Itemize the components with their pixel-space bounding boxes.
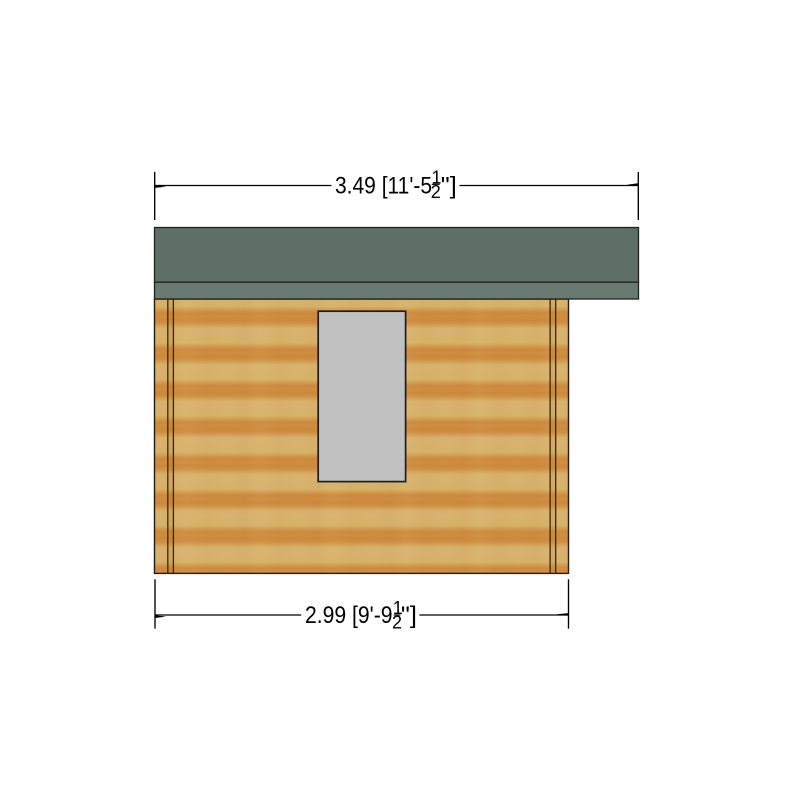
svg-text:2.99 [9'-9: 2.99 [9'-9 [305,602,393,629]
svg-text:2: 2 [431,182,441,202]
svg-text:"]: "] [401,602,417,629]
svg-text:"]: "] [441,173,457,200]
svg-text:3.49 [11'-5: 3.49 [11'-5 [335,173,432,200]
